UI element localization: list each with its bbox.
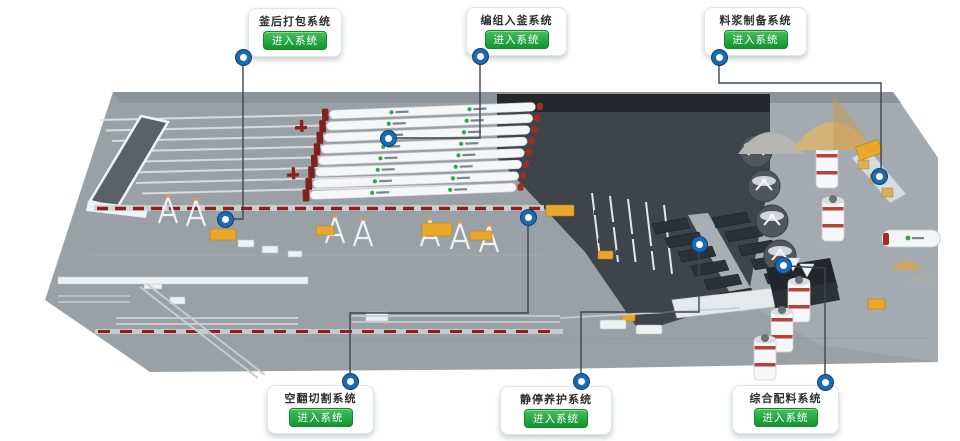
marker-precuring[interactable]	[692, 237, 707, 252]
card-precuring-system: 静停养护系统 进入系统	[500, 386, 612, 435]
card-anchor-dot	[712, 50, 727, 65]
card-title: 料浆制备系统	[720, 15, 792, 26]
card-anchor-dot	[818, 375, 833, 390]
transfer-track-upper	[94, 205, 544, 211]
marker-slurry-preparation[interactable]	[872, 169, 887, 184]
card-anchor-dot	[343, 374, 358, 389]
transfer-track-lower	[95, 329, 563, 334]
card-slurry-preparation-system: 料浆制备系统 进入系统	[704, 7, 807, 56]
marker-autoclave-packing[interactable]	[218, 212, 233, 227]
card-title: 静停养护系统	[520, 394, 592, 405]
enter-system-button[interactable]: 进入系统	[524, 409, 588, 428]
card-title: 编组入釜系统	[481, 15, 553, 26]
cutting-machine	[422, 223, 452, 236]
card-tilt-cutting-system: 空翻切割系统 进入系统	[267, 385, 374, 434]
card-anchor-dot	[574, 374, 589, 389]
plant-overview-page: 釜后打包系统 进入系统 编组入釜系统 进入系统 料浆制备系统 进入系统 空翻切割…	[0, 0, 960, 441]
marker-grouping-into-autoclave[interactable]	[381, 131, 396, 146]
enter-system-button[interactable]: 进入系统	[754, 408, 818, 427]
factory-3d-scene	[0, 0, 960, 441]
card-anchor-dot	[236, 50, 251, 65]
card-batching-system: 综合配料系统 进入系统	[732, 385, 839, 434]
card-anchor-dot	[473, 49, 488, 64]
enter-system-button[interactable]: 进入系统	[485, 30, 549, 49]
card-autoclave-packing-system: 釜后打包系统 进入系统	[248, 8, 342, 57]
enter-system-button[interactable]: 进入系统	[724, 30, 788, 49]
marker-batching[interactable]	[776, 258, 791, 273]
brand-logo	[906, 236, 911, 241]
card-title: 釜后打包系统	[259, 16, 331, 27]
enter-system-button[interactable]: 进入系统	[289, 408, 353, 427]
enter-system-button[interactable]: 进入系统	[263, 31, 327, 50]
marker-tilt-cutting[interactable]	[521, 210, 536, 225]
horizontal-tank	[882, 230, 940, 247]
card-title: 综合配料系统	[750, 393, 822, 404]
card-title: 空翻切割系统	[285, 393, 357, 404]
